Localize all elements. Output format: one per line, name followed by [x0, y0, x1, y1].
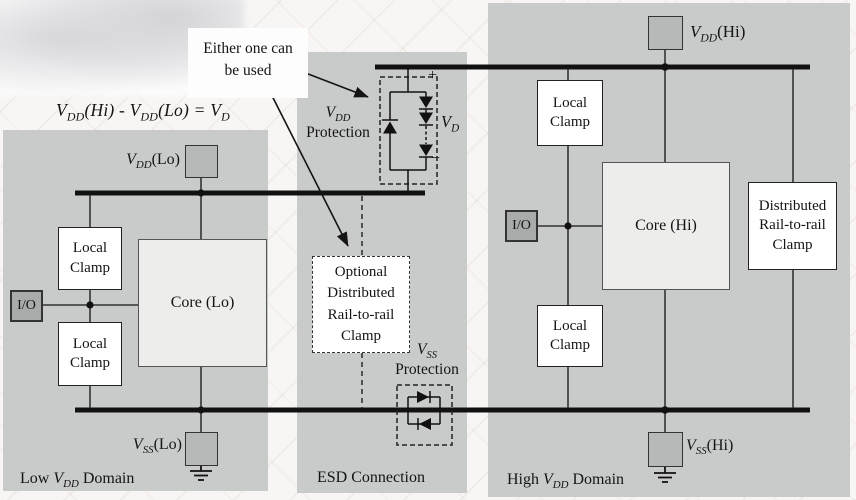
vss-hi-pad: [648, 432, 683, 467]
optional-distributed-clamp-box: Optional Distributed Rail-to-rail Clamp: [312, 256, 410, 353]
vdd-lo-pad: [185, 145, 218, 178]
vss-protection-dashed-box: [397, 385, 452, 445]
diode-down-icon: [419, 97, 433, 109]
arrow-to-vdd-protection: [303, 72, 368, 97]
io-pad-right: I/O: [505, 210, 538, 242]
vss-protection-circuit: [397, 385, 452, 445]
local-clamp-box: Local Clamp: [58, 322, 122, 386]
vss-lo-pad-label: VSS(Lo): [102, 436, 182, 454]
vd-label: VD: [441, 112, 459, 132]
local-clamp-box: Local Clamp: [58, 227, 122, 290]
diode-down-icon: [419, 113, 433, 125]
local-clamp-box: Local Clamp: [537, 80, 603, 146]
high-domain-label: High VDD Domain: [507, 471, 624, 489]
vss-lo-pad: [185, 432, 218, 466]
vdd-hi-pad: [648, 16, 683, 50]
vss-protection-label: VSS Protection: [385, 340, 469, 380]
vdd-lo-pad-label: VDD(Lo): [100, 151, 180, 169]
distributed-rail-clamp-box: Distributed Rail-to-rail Clamp: [748, 182, 837, 270]
ground-icon: [654, 467, 676, 482]
diode-up-icon: [383, 122, 397, 134]
either-one-note: Either one can be used: [188, 28, 308, 98]
plus-sign: +: [428, 67, 437, 85]
low-domain-label: Low VDD Domain: [20, 470, 134, 488]
vdd-hi-pad-label: VDD(Hi): [690, 22, 745, 42]
annotation-arrows: [262, 72, 368, 246]
esd-connection-label: ESD Connection: [317, 469, 425, 487]
arrow-to-optional-clamp: [262, 76, 348, 246]
diode-right-icon: [417, 391, 429, 403]
minus-sign: −: [431, 150, 440, 168]
vdd-protection-circuit: [380, 69, 437, 191]
vdd-protection-label: VDD Protection: [296, 103, 380, 143]
core-hi-box: Core (Hi): [602, 162, 730, 290]
vss-hi-pad-label: VSS(Hi): [686, 437, 733, 455]
local-clamp-box: Local Clamp: [537, 305, 603, 367]
voltage-formula: VDD(Hi) - VDD(Lo) = VD: [56, 100, 230, 121]
io-pad-left: I/O: [10, 290, 43, 322]
diode-left-icon: [419, 418, 431, 430]
ground-icon: [190, 466, 212, 480]
core-lo-box: Core (Lo): [138, 239, 267, 367]
esd-cross-domain-diagram: Either one can be used VDD(Hi) - VDD(Lo)…: [0, 0, 856, 500]
